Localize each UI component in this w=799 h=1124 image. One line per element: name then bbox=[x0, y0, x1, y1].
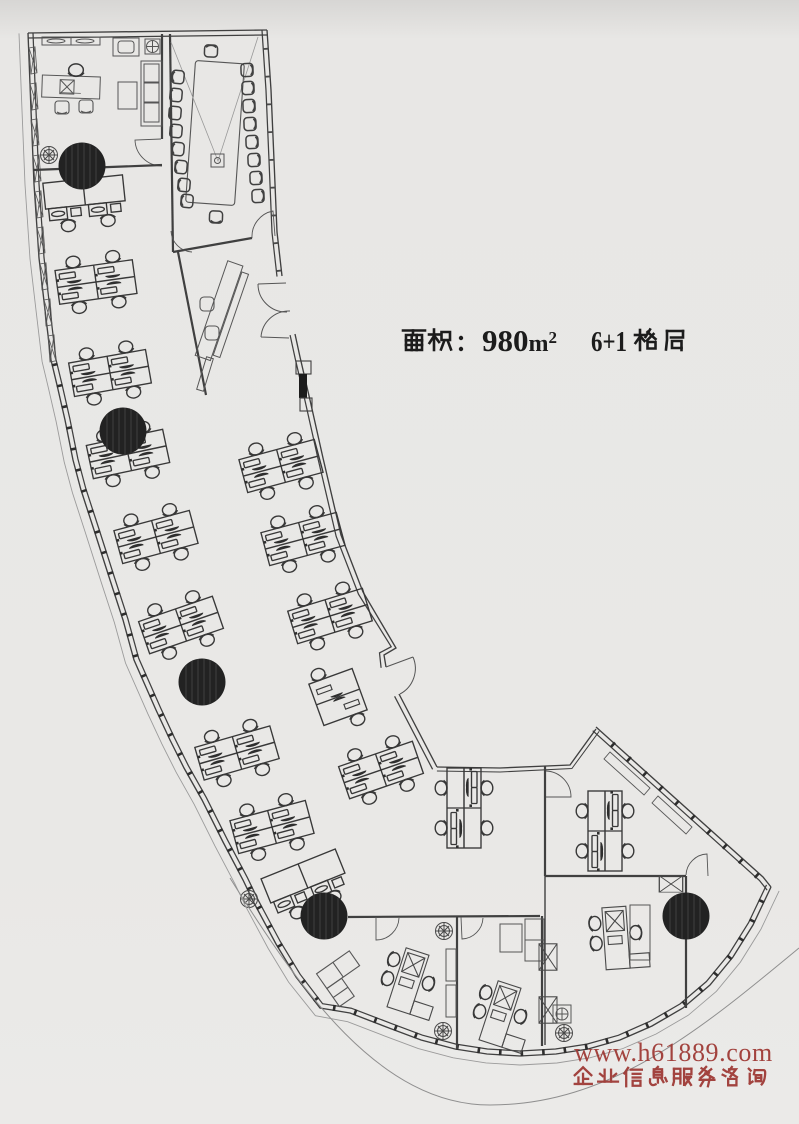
svg-text:www.h61889.com: www.h61889.com bbox=[574, 1038, 773, 1067]
svg-text:6+1: 6+1 bbox=[591, 326, 627, 358]
